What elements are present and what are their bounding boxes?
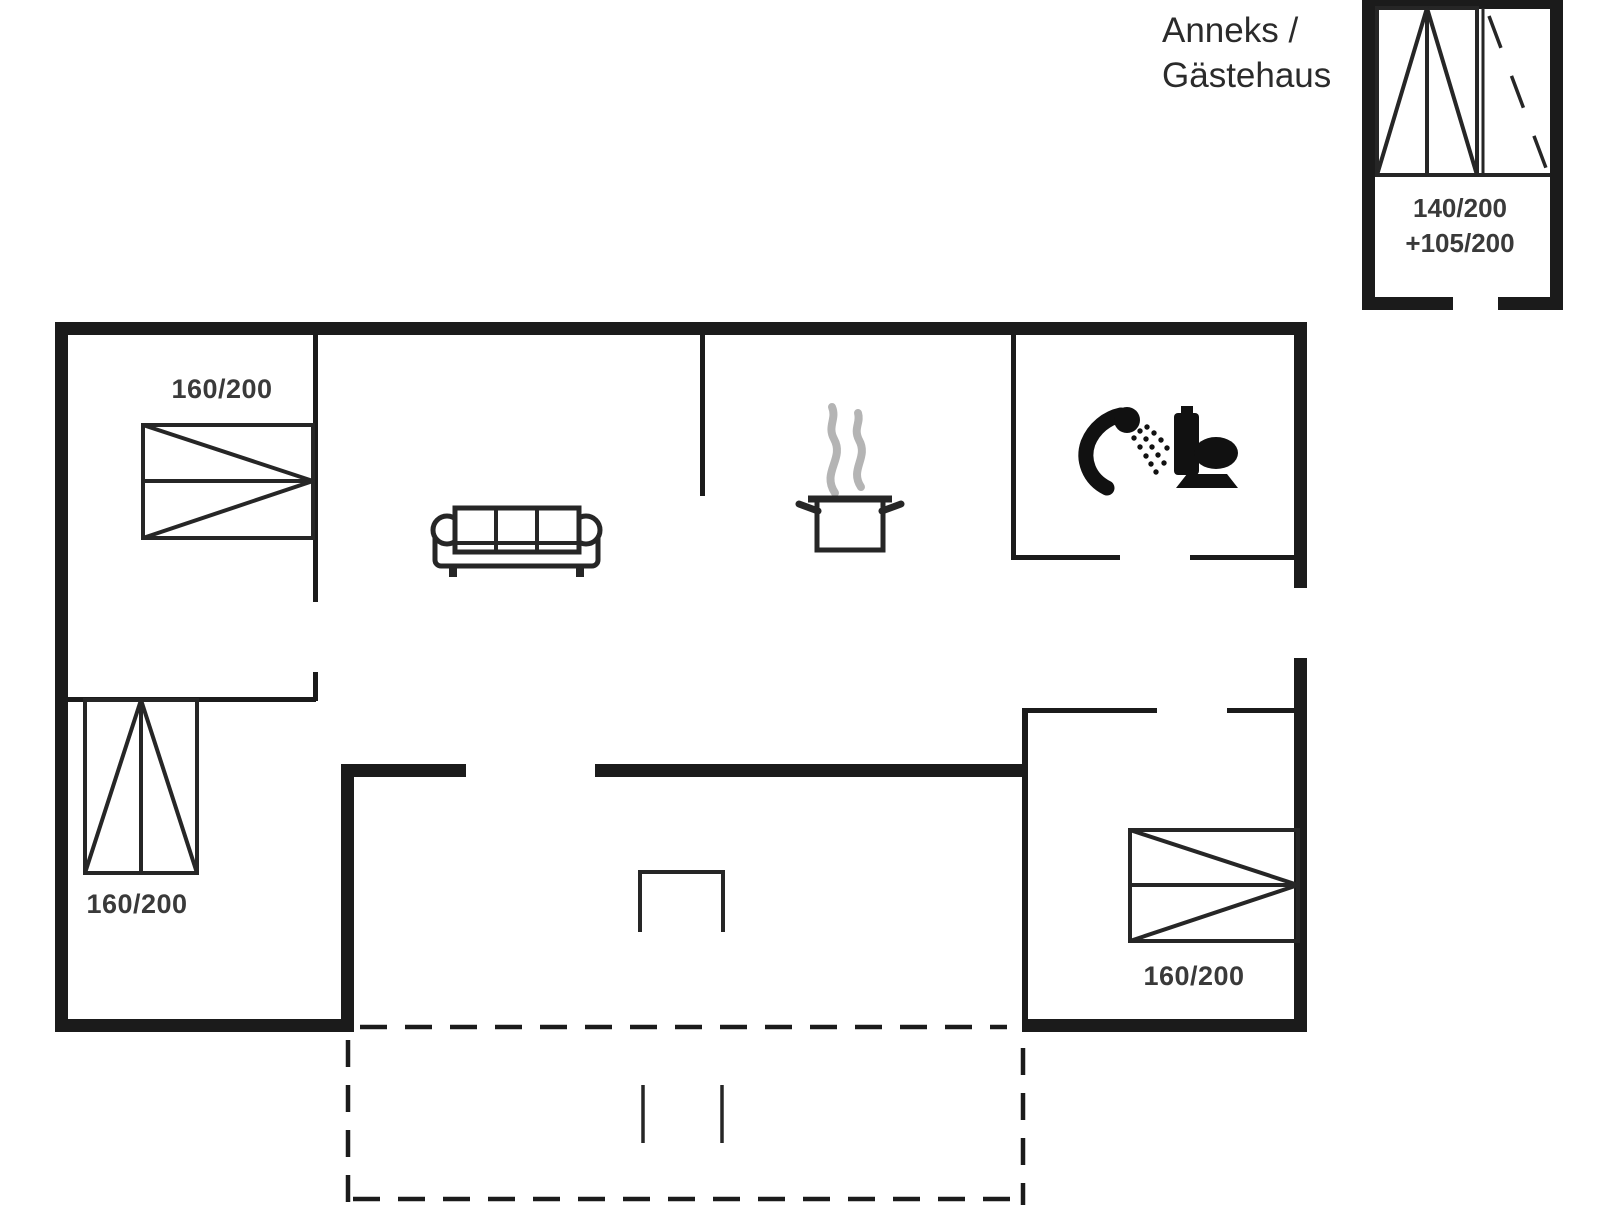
sofa-icon [433, 508, 600, 577]
wall-bedroom3-top-b [1227, 708, 1294, 713]
floor-plan-page: Anneks / Gästehaus 140/200 +105/200 160/… [0, 0, 1606, 1205]
wall-bottom-left [55, 1019, 353, 1032]
wall-mid-b [595, 764, 1028, 777]
interior-walls [68, 335, 1294, 1019]
wall-bathroom-left [1011, 335, 1016, 559]
wall-right-lower [1294, 658, 1307, 1032]
annex-wall-right [1550, 0, 1563, 310]
wall-top [55, 322, 1307, 335]
annex-title-line2: Gästehaus [1162, 53, 1382, 98]
open-rectangle-step-marker [640, 872, 723, 932]
toilet-icon [1174, 406, 1238, 488]
wall-mid-vertical [341, 764, 354, 1032]
annex-title-line1: Anneks / [1162, 8, 1382, 53]
steam-icon [830, 407, 861, 493]
wall-bedroom3-top-a [1022, 708, 1157, 713]
shower-spray-dots [1131, 424, 1169, 474]
annex-wall-bottom-b [1498, 297, 1563, 310]
annex-double-bed-icon [1377, 8, 1477, 175]
wall-bedroom1-right-lower [313, 672, 318, 701]
annex-bed-size-line1: 140/200 [1385, 191, 1535, 226]
bed-size-label-top-left: 160/200 [157, 374, 287, 405]
step-marks [643, 1085, 722, 1143]
annex-bed-size-line2: +105/200 [1385, 226, 1535, 261]
floor-plan-drawing [0, 0, 1606, 1205]
annex-wall-bottom-a [1362, 297, 1453, 310]
annex-title: Anneks / Gästehaus [1162, 8, 1382, 98]
bed-size-label-bottom-right: 160/200 [1129, 961, 1259, 992]
wall-bathroom-bottom-a [1011, 555, 1120, 560]
wall-bedroom3-left [1022, 708, 1028, 1019]
wall-living-kitchen [700, 335, 705, 496]
wall-left [55, 322, 68, 1032]
hand-shower-icon [1086, 407, 1170, 488]
annex-bed-size-label: 140/200 +105/200 [1385, 191, 1535, 261]
wall-bottom-right [1022, 1019, 1307, 1032]
wall-right-upper [1294, 322, 1307, 588]
wall-mid-a [341, 764, 466, 777]
annex-walls [1362, 0, 1563, 310]
wall-bathroom-bottom-b [1190, 555, 1294, 560]
bed-size-label-bottom-left: 160/200 [72, 889, 202, 920]
double-bed-icon [1130, 830, 1298, 941]
double-bed-icon [85, 700, 197, 873]
double-bed-icon [143, 425, 313, 538]
terrace-dashed-outline [348, 1027, 1023, 1205]
cooking-pot-icon [799, 499, 901, 550]
